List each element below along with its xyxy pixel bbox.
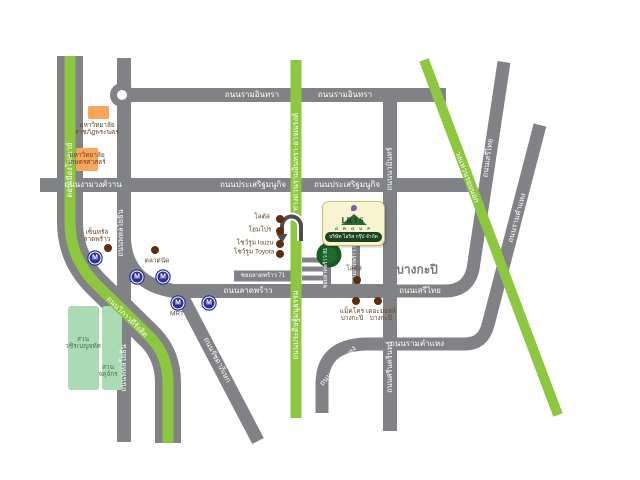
- mrt-icon-2: M: [131, 271, 144, 284]
- label-phahonyothin-north: ถนนพหลโยธิน: [117, 209, 125, 256]
- lotus-bangkapi-label: โลตัส: [346, 267, 362, 274]
- toyota-dot: [276, 250, 284, 258]
- bang-kapi-district-label: บางกะปิ: [396, 264, 438, 277]
- label-prasert-east: ถนนประเสริฐมนูกิจ: [314, 181, 380, 189]
- mrt-icon-3: M: [157, 271, 170, 284]
- iris-brand-text: IRIS: [341, 216, 365, 225]
- lotus-ladprao-dot: [276, 215, 284, 223]
- mrt-icon-1: M: [89, 252, 102, 265]
- label-pradit-manutham: ถนนประดิษฐ์มนูธรรม: [292, 290, 300, 359]
- market-label: ตลาดนัด: [145, 259, 170, 266]
- homepro-dot: [276, 227, 284, 235]
- label-ram-inthra-west: ถนนรามอินทรา: [225, 91, 279, 99]
- market-dot: [151, 246, 159, 254]
- the-mall-dot: [374, 297, 382, 305]
- central-ladprao-label: เซ็นทรัล ลาดพร้าว: [84, 230, 111, 244]
- label-prasert-west: ถนนประเสริฐมนูกิจ: [220, 181, 286, 189]
- label-soi-lat-phrao-81: ซอยลาดพร้าว 81: [324, 248, 330, 289]
- mrt-icon-4: M: [172, 297, 185, 310]
- homepro-label: โฮมโปร: [249, 228, 272, 235]
- vachirabenjatas-park-label: สวน วชิรเบญจทัศ: [65, 337, 101, 351]
- iris-company-name: บริษัท ไอริส กรุ๊ป จำกัด: [325, 232, 382, 242]
- label-seri-thai-h: ถนนเสรีไทย: [399, 287, 441, 295]
- rajabhat-university-block: [88, 106, 109, 119]
- label-ramkhamhaeng-h: ถนนรามคำแหง: [390, 340, 444, 348]
- mrt-icon-5: M: [203, 297, 216, 310]
- rajabhat-university-label: มหาวิทยาลัย ราชภัฏพระนคร: [75, 123, 119, 137]
- iris-flower-icon: [351, 205, 357, 211]
- makro-bangkapi-label: แม็คโคร บางกะปิ: [340, 309, 364, 323]
- chatuchak-park-label: สวน จตุจักร: [98, 365, 117, 379]
- label-phahonyothin-south: ถนนพหลโยธิน: [120, 344, 128, 391]
- label-soi-lat-phrao-71: ซอยลาดพร้าว 71: [241, 273, 285, 279]
- roundabout-inner: [117, 90, 127, 100]
- label-lat-phrao: ถนนลาดพร้าว: [224, 287, 273, 295]
- label-nawamin: ถนนนวมินทร์: [386, 147, 394, 190]
- label-ramindra-expressway: ทางด่วนรามอินทรา-อาจณรงค์: [292, 113, 300, 211]
- lotus-bangkapi-dot: [353, 276, 361, 284]
- iris-group-text: G R O U P: [335, 226, 372, 231]
- mrt-station-label: MRT: [170, 312, 184, 319]
- label-don-mueang-tollway: ดอนเมืองโทลเวย์: [66, 143, 74, 198]
- location-map: ถนนรามอินทรา ถนนรามอินทรา ถนนงามวงศ์วาน …: [0, 0, 640, 480]
- iris-logo-mark: IRIS: [336, 212, 372, 225]
- label-srinagarindra: ถนนศรีนครินทร์: [386, 341, 394, 393]
- iris-group-callout: IRIS G R O U P บริษัท ไอริส กรุ๊ป จำกัด: [322, 201, 385, 246]
- the-mall-bangkapi-label: เดอะมอลล์ บางกะปิ: [366, 309, 396, 323]
- kasetsart-university-label: มหาวิทยาลัย เกษตรศาสตร์: [68, 153, 106, 167]
- lotus-ladprao-label: โลตัส: [254, 215, 270, 222]
- central-ladprao-dot: [104, 244, 112, 252]
- toyota-showroom-label: โชว์รูม Toyota: [234, 250, 274, 257]
- isuzu-dot: [276, 240, 284, 248]
- makro-dot: [352, 297, 360, 305]
- label-ram-inthra-east: ถนนรามอินทรา: [318, 91, 372, 99]
- isuzu-showroom-label: โชว์รูม Isuzu: [237, 241, 274, 248]
